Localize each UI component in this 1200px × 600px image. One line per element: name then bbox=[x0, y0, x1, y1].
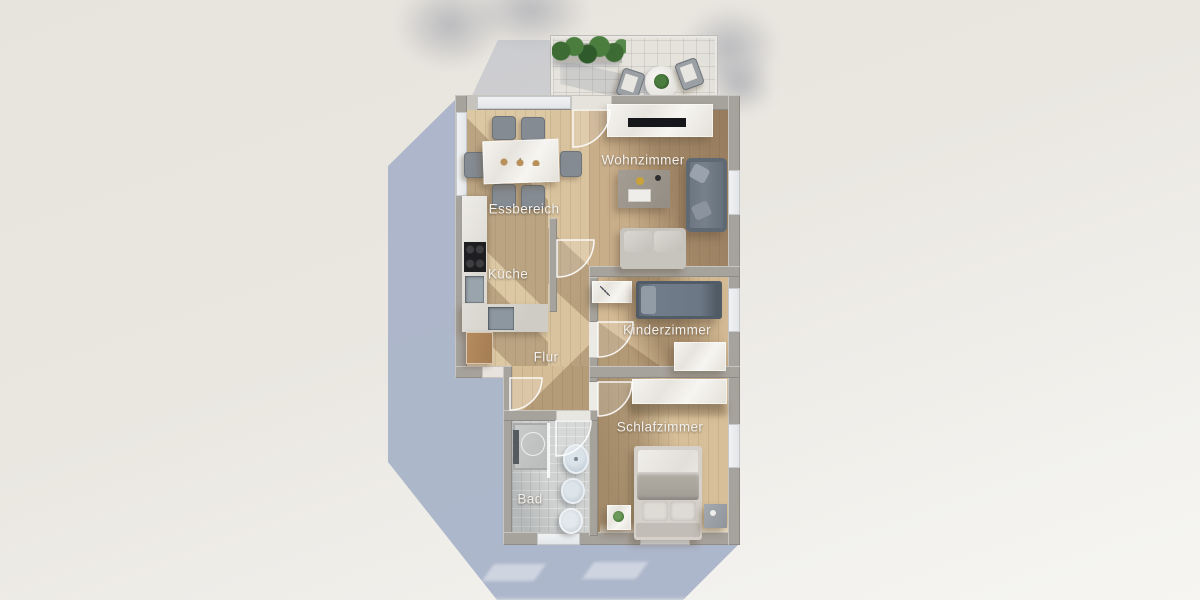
schlafzimmer-door-arc bbox=[598, 382, 632, 416]
room-label-schlafzimmer: Schlafzimmer bbox=[617, 420, 704, 435]
door-arcs bbox=[0, 0, 1200, 600]
room-label-kinderzimmer: Kinderzimmer bbox=[623, 323, 711, 338]
floorplan-canvas: Wohnzimmer Essbereich Küche Kinderzimmer… bbox=[0, 0, 1200, 600]
room-label-flur: Flur bbox=[534, 350, 559, 365]
room-label-bad: Bad bbox=[517, 492, 542, 507]
room-label-kueche: Küche bbox=[488, 267, 528, 282]
room-label-essbereich: Essbereich bbox=[489, 202, 560, 217]
balcony-door-arc bbox=[573, 110, 610, 147]
room-label-wohnzimmer: Wohnzimmer bbox=[601, 153, 684, 168]
entry-door-arc bbox=[510, 378, 542, 410]
bad-door-arc bbox=[556, 421, 591, 456]
kitchen-door-arc bbox=[557, 240, 594, 277]
